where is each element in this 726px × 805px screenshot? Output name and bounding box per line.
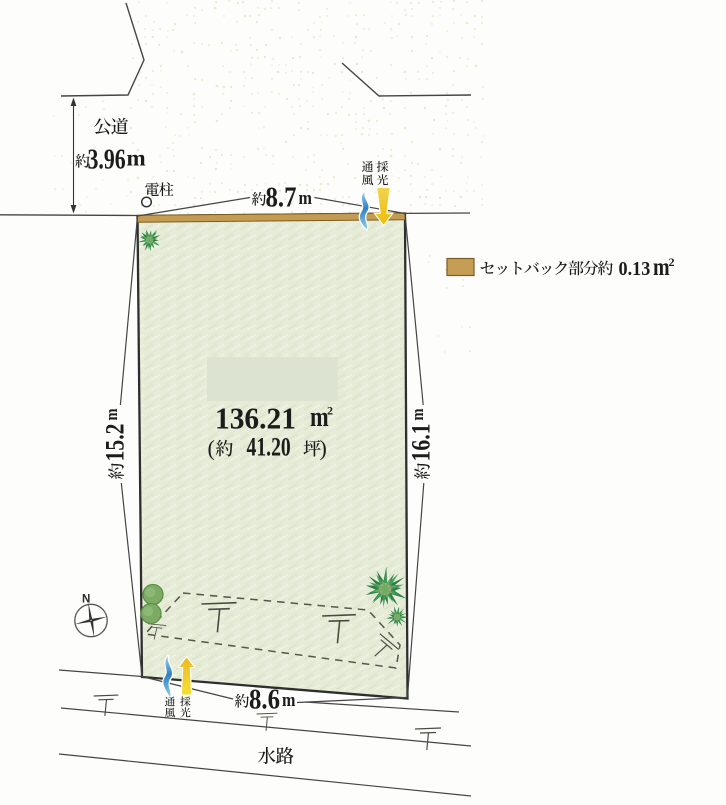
svg-text:m: m xyxy=(282,689,296,711)
svg-text:16.1: 16.1 xyxy=(408,424,436,462)
svg-text:2: 2 xyxy=(327,404,333,418)
svg-text:m: m xyxy=(653,253,670,281)
svg-text:m: m xyxy=(299,187,313,209)
svg-text:0.13: 0.13 xyxy=(619,258,651,280)
svg-text:): ) xyxy=(320,436,327,461)
svg-text:m: m xyxy=(310,402,329,433)
svg-text:N: N xyxy=(82,594,90,606)
svg-text:2: 2 xyxy=(669,255,675,269)
svg-text:41.20: 41.20 xyxy=(247,432,291,461)
svg-text:3.96: 3.96 xyxy=(88,145,126,175)
svg-text:8.6: 8.6 xyxy=(249,683,280,715)
svg-text:15.2: 15.2 xyxy=(102,424,130,462)
svg-text:8.7: 8.7 xyxy=(266,181,297,213)
svg-text:(: ( xyxy=(208,436,215,461)
svg-text:136.21: 136.21 xyxy=(215,401,296,436)
svg-text:m: m xyxy=(103,408,121,420)
svg-text:m: m xyxy=(127,146,146,171)
svg-text:m: m xyxy=(409,408,427,420)
